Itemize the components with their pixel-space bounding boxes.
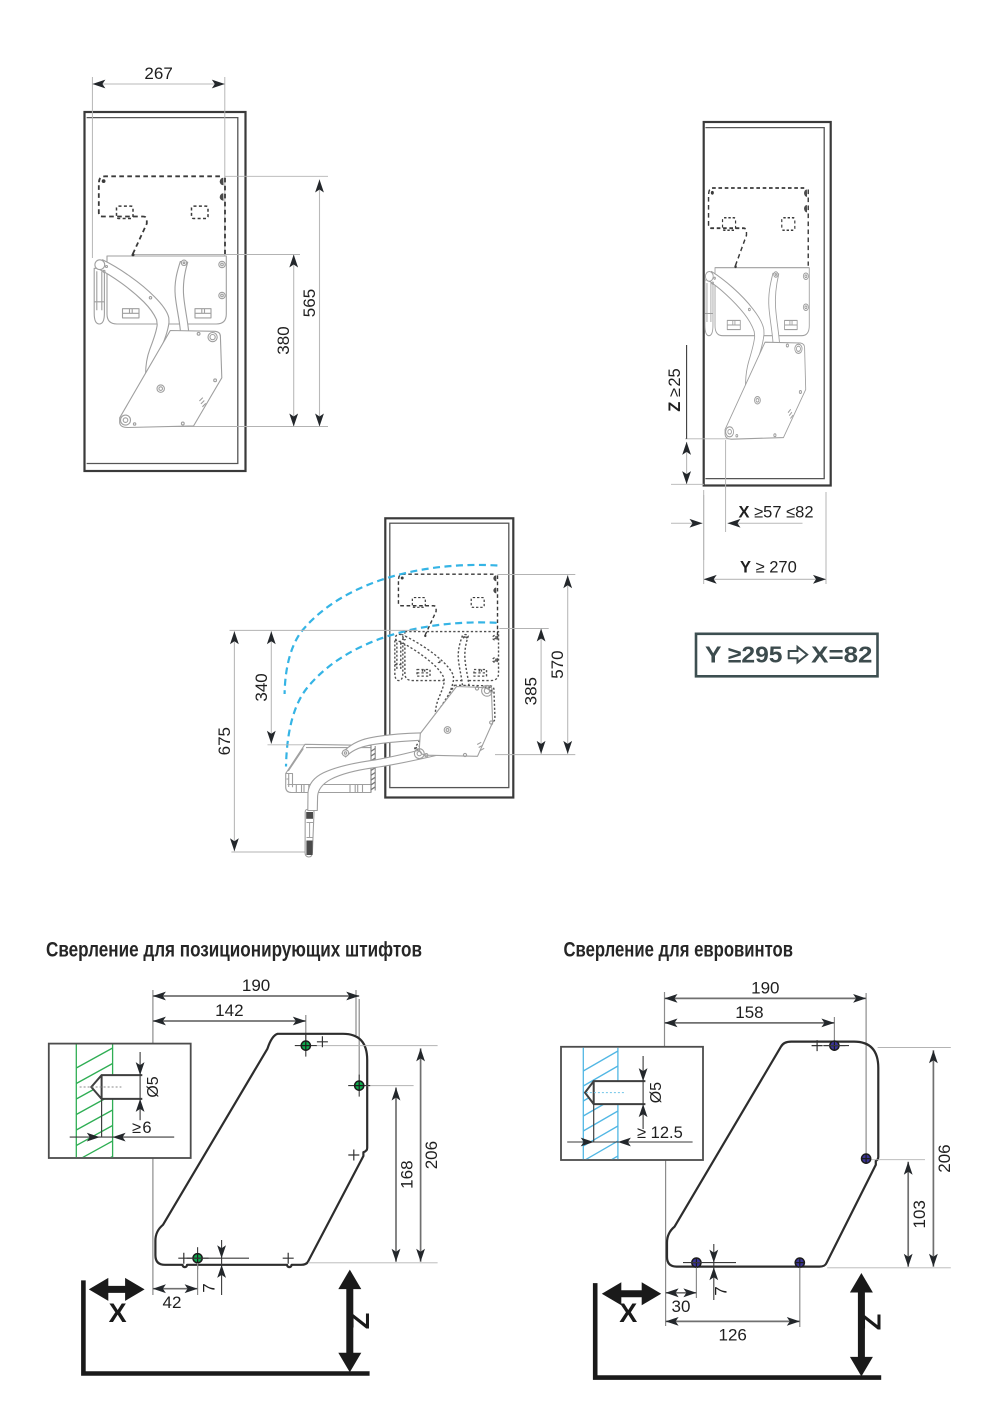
svg-text:103: 103 xyxy=(910,1200,929,1228)
svg-text:X ≥57 ≤82: X ≥57 ≤82 xyxy=(739,504,814,522)
svg-text:Z ≥ 25: Z ≥ 25 xyxy=(666,368,684,411)
svg-text:675: 675 xyxy=(215,727,234,755)
svg-text:≥ 6: ≥ 6 xyxy=(132,1119,152,1137)
svg-text:168: 168 xyxy=(398,1160,417,1188)
svg-text:≥ 12.5: ≥ 12.5 xyxy=(637,1124,683,1142)
svg-text:Ø5: Ø5 xyxy=(145,1076,162,1097)
svg-text:Ø5: Ø5 xyxy=(648,1082,665,1103)
svg-text:30: 30 xyxy=(672,1297,691,1316)
svg-text:X: X xyxy=(619,1298,637,1328)
svg-text:190: 190 xyxy=(242,976,270,995)
svg-text:385: 385 xyxy=(522,677,541,705)
svg-text:570: 570 xyxy=(548,650,567,678)
svg-text:Z: Z xyxy=(345,1313,375,1330)
svg-text:206: 206 xyxy=(422,1141,441,1169)
svg-text:Z: Z xyxy=(857,1314,887,1331)
svg-text:Сверление для евровинтов: Сверление для евровинтов xyxy=(564,938,794,962)
svg-text:158: 158 xyxy=(735,1003,763,1022)
svg-text:190: 190 xyxy=(751,978,779,997)
svg-text:267: 267 xyxy=(144,64,172,83)
svg-text:340: 340 xyxy=(252,673,271,701)
svg-text:42: 42 xyxy=(163,1293,182,1312)
svg-text:Y ≥ 270: Y ≥ 270 xyxy=(740,559,797,577)
svg-text:7: 7 xyxy=(712,1286,731,1295)
svg-text:126: 126 xyxy=(719,1326,747,1345)
svg-text:142: 142 xyxy=(215,1001,243,1020)
svg-text:Сверление для позиционирующих: Сверление для позиционирующих штифтов xyxy=(46,938,422,962)
svg-text:7: 7 xyxy=(200,1283,219,1292)
svg-text:565: 565 xyxy=(300,289,319,317)
svg-text:X: X xyxy=(109,1298,127,1328)
svg-text:380: 380 xyxy=(274,326,293,354)
svg-text:Y ≥295: Y ≥295 xyxy=(705,642,783,668)
svg-text:206: 206 xyxy=(935,1144,954,1172)
svg-text:X=82: X=82 xyxy=(811,642,872,668)
